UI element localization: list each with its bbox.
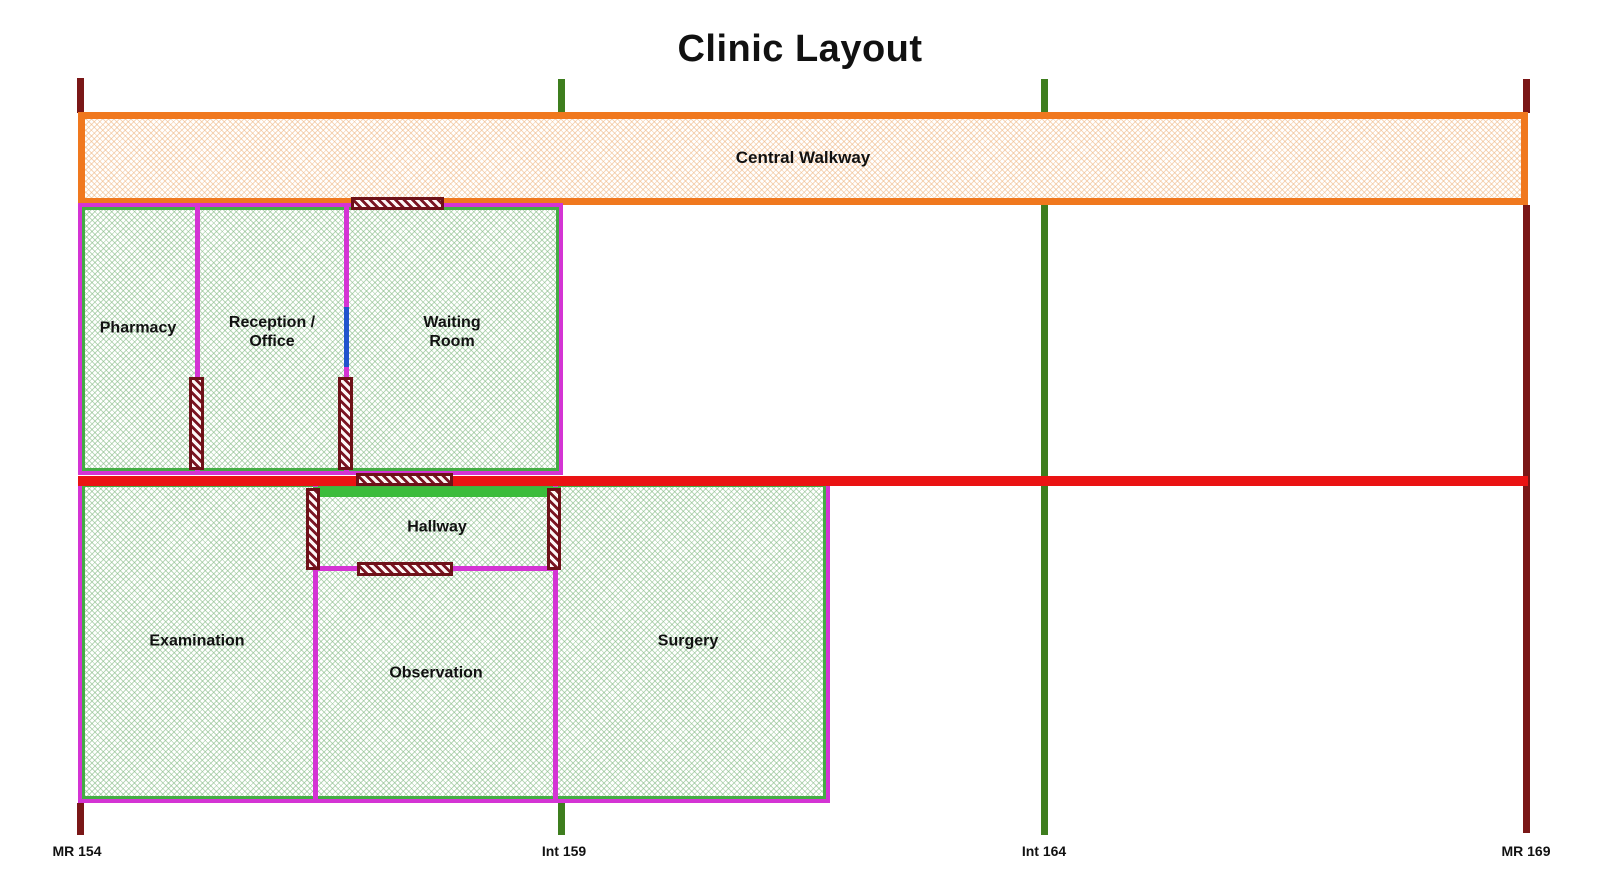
blue-wall-segment (344, 307, 349, 367)
room-label-observation: Observation (389, 664, 482, 683)
boundary-line-int-159-top (558, 79, 565, 113)
boundary-label-int-159: Int 159 (542, 843, 586, 859)
boundary-line-mr-154-bottom (77, 803, 84, 835)
central-walkway-label: Central Walkway (736, 148, 870, 168)
door-hallway-left (306, 488, 320, 570)
clinic-layout-diagram: Clinic Layout Central Walkway Pharmacy R… (0, 0, 1600, 896)
door-hallway-bottom (357, 562, 453, 576)
room-label-reception-line1: Reception / (229, 314, 315, 331)
hallway-top-green-segment (313, 487, 561, 497)
room-label-examination: Examination (149, 632, 244, 651)
page-title: Clinic Layout (0, 28, 1600, 71)
door-red-wall (356, 473, 453, 486)
upper-rooms-block (78, 203, 563, 475)
door-reception-waiting (338, 377, 353, 470)
red-boundary-wall (78, 476, 1528, 486)
boundary-line-mr-154-top (77, 78, 84, 113)
boundary-line-int-164-top (1041, 79, 1048, 113)
boundary-label-int-164: Int 164 (1022, 843, 1066, 859)
door-hallway-right (547, 488, 561, 570)
room-label-waiting-line2: Room (429, 333, 474, 350)
boundary-line-int-164 (1041, 205, 1048, 835)
boundary-label-mr-154: MR 154 (52, 843, 101, 859)
room-label-reception-line2: Office (249, 333, 294, 350)
room-label-surgery: Surgery (658, 632, 718, 651)
boundary-line-int-159-bottom (558, 803, 565, 835)
room-label-waiting: WaitingRoom (423, 313, 480, 351)
room-label-hallway: Hallway (407, 518, 467, 537)
boundary-label-mr-169: MR 169 (1501, 843, 1550, 859)
boundary-line-mr-169 (1523, 205, 1530, 833)
room-label-waiting-line1: Waiting (423, 314, 480, 331)
room-label-reception: Reception /Office (229, 313, 315, 351)
door-pharmacy-reception (189, 377, 204, 470)
door-waiting-room-top (351, 197, 444, 210)
room-label-pharmacy: Pharmacy (100, 319, 177, 338)
boundary-line-mr-169-top (1523, 79, 1530, 113)
